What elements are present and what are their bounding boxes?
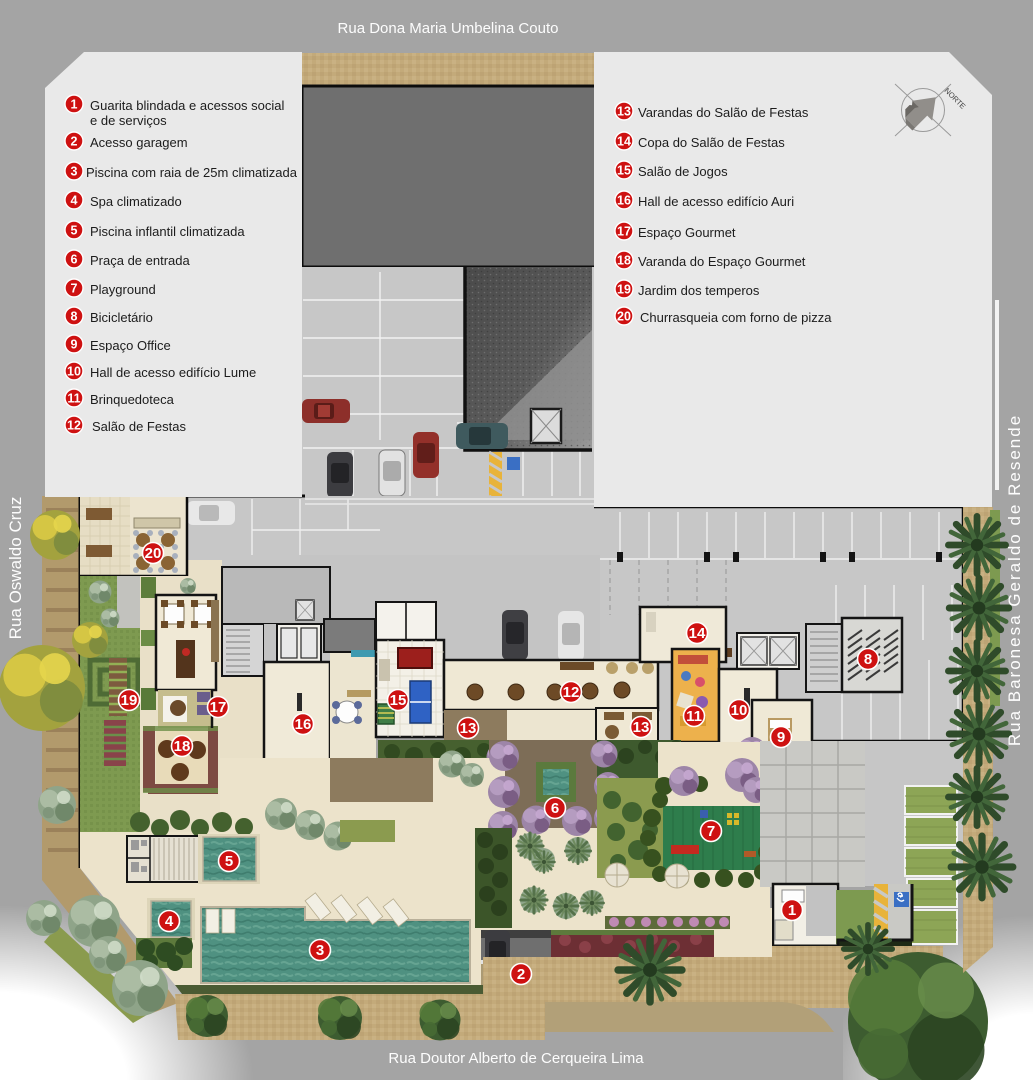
svg-text:Acesso garagem: Acesso garagem <box>90 135 188 150</box>
svg-text:Playground: Playground <box>90 282 156 297</box>
svg-text:Brinquedoteca: Brinquedoteca <box>90 392 175 407</box>
svg-text:14: 14 <box>689 625 706 642</box>
svg-text:2: 2 <box>517 966 525 983</box>
svg-text:11: 11 <box>67 392 80 406</box>
svg-text:Rua Oswaldo Cruz: Rua Oswaldo Cruz <box>6 497 25 640</box>
svg-text:Salão de Festas: Salão de Festas <box>92 419 186 434</box>
svg-text:13: 13 <box>617 105 631 119</box>
svg-text:3: 3 <box>71 165 78 179</box>
svg-text:Piscina inflantil climatizada: Piscina inflantil climatizada <box>90 224 245 239</box>
svg-text:19: 19 <box>121 692 138 709</box>
svg-text:Copa do Salão de Festas: Copa do Salão de Festas <box>638 135 785 150</box>
svg-text:15: 15 <box>617 164 631 178</box>
svg-text:Guarita blindada e acessos soc: Guarita blindada e acessos social <box>90 98 285 113</box>
svg-text:18: 18 <box>174 738 191 755</box>
svg-text:19: 19 <box>617 283 631 297</box>
svg-text:Varandas do Salão de Festas: Varandas do Salão de Festas <box>638 105 809 120</box>
svg-text:16: 16 <box>617 194 631 208</box>
svg-text:20: 20 <box>617 310 631 324</box>
svg-text:7: 7 <box>707 823 715 840</box>
svg-text:14: 14 <box>617 135 631 149</box>
svg-text:Spa climatizado: Spa climatizado <box>90 194 182 209</box>
svg-text:6: 6 <box>71 253 78 267</box>
svg-text:Praça de entrada: Praça de entrada <box>90 253 191 268</box>
svg-text:13: 13 <box>460 720 477 737</box>
svg-text:12: 12 <box>563 684 580 701</box>
svg-text:9: 9 <box>777 729 785 746</box>
svg-text:6: 6 <box>551 800 559 817</box>
svg-text:5: 5 <box>71 224 78 238</box>
svg-text:e de serviços: e de serviços <box>90 113 167 128</box>
svg-text:13: 13 <box>633 719 650 736</box>
svg-text:Varanda do Espaço Gourmet: Varanda do Espaço Gourmet <box>638 254 806 269</box>
svg-text:Salão de Jogos: Salão de Jogos <box>638 164 728 179</box>
svg-text:11: 11 <box>686 708 702 725</box>
svg-text:9: 9 <box>71 338 78 352</box>
svg-text:1: 1 <box>71 98 78 112</box>
svg-text:Piscina com raia de 25m climat: Piscina com raia de 25m climatizada <box>86 165 298 180</box>
svg-text:4: 4 <box>71 194 78 208</box>
svg-text:18: 18 <box>617 254 631 268</box>
svg-text:Hall de acesso edifício Auri: Hall de acesso edifício Auri <box>638 194 794 209</box>
svg-text:Rua Doutor Alberto de Cerqueir: Rua Doutor Alberto de Cerqueira Lima <box>388 1050 644 1067</box>
svg-text:5: 5 <box>225 853 233 870</box>
svg-text:8: 8 <box>864 651 872 668</box>
svg-text:17: 17 <box>210 699 227 716</box>
svg-text:Rua Dona Maria Umbelina Couto: Rua Dona Maria Umbelina Couto <box>338 20 559 37</box>
svg-text:Churrasqueia com forno de pizz: Churrasqueia com forno de pizza <box>640 310 832 325</box>
svg-text:1: 1 <box>788 902 796 919</box>
svg-text:15: 15 <box>390 692 407 709</box>
svg-text:17: 17 <box>617 225 631 239</box>
svg-text:20: 20 <box>145 545 162 562</box>
svg-text:7: 7 <box>71 282 78 296</box>
svg-text:Jardim dos temperos: Jardim dos temperos <box>638 283 760 298</box>
svg-text:10: 10 <box>731 702 748 719</box>
svg-text:12: 12 <box>67 419 81 433</box>
svg-text:16: 16 <box>295 716 312 733</box>
svg-text:Rua Baronesa Geraldo de Resend: Rua Baronesa Geraldo de Resende <box>1005 414 1024 746</box>
svg-text:Bicicletário: Bicicletário <box>90 310 153 325</box>
svg-text:Espaço Office: Espaço Office <box>90 338 171 353</box>
svg-text:3: 3 <box>316 942 324 959</box>
svg-text:2: 2 <box>71 135 78 149</box>
svg-text:10: 10 <box>67 365 81 379</box>
svg-text:4: 4 <box>165 913 174 930</box>
svg-text:Hall de acesso edifício Lume: Hall de acesso edifício Lume <box>90 365 256 380</box>
svg-text:Espaço Gourmet: Espaço Gourmet <box>638 225 736 240</box>
svg-text:8: 8 <box>71 310 78 324</box>
